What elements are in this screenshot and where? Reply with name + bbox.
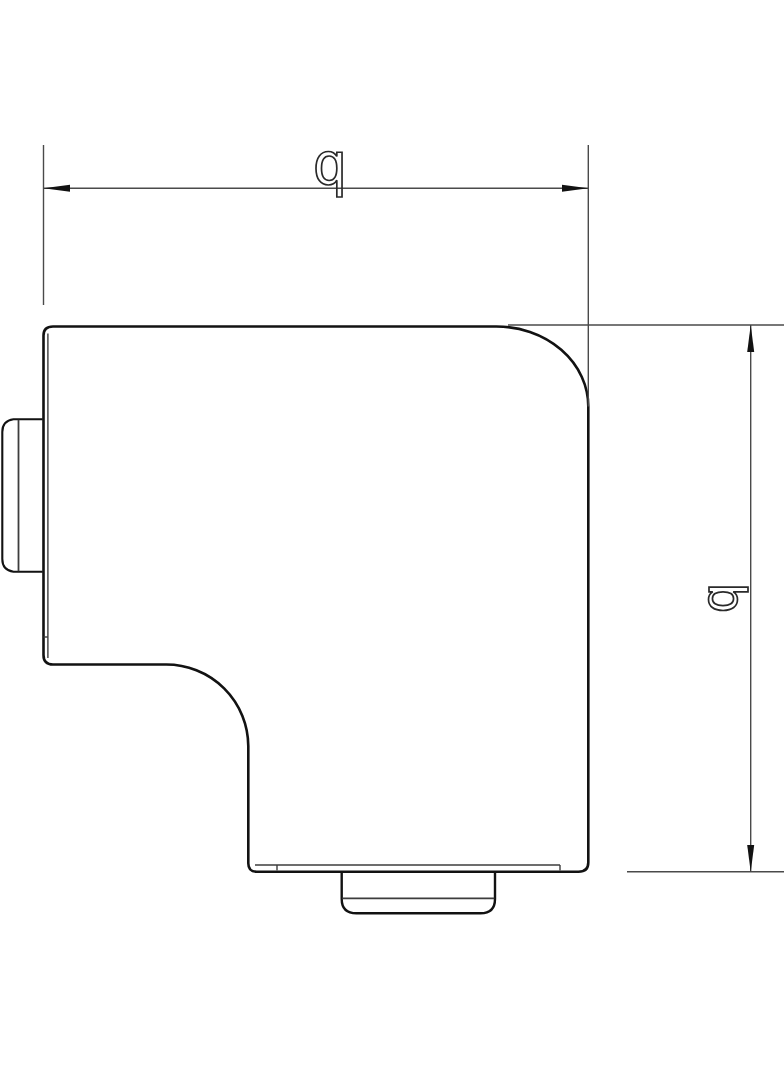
bottom-socket-outline [342,872,495,913]
width-dimension-label: b [313,138,348,206]
part-body-outline [44,326,589,871]
left-socket-outline [2,419,42,571]
technical-drawing: b b [0,0,784,1066]
drawing-canvas: b b [0,0,784,1066]
part-detail-lines [19,334,561,899]
arrowhead-up-icon [747,325,754,352]
part-outline [2,326,588,913]
arrowhead-left-icon [44,185,71,192]
arrowhead-right-icon [562,185,588,192]
arrowhead-down-icon [747,845,754,872]
height-dimension-label: b [697,582,757,613]
